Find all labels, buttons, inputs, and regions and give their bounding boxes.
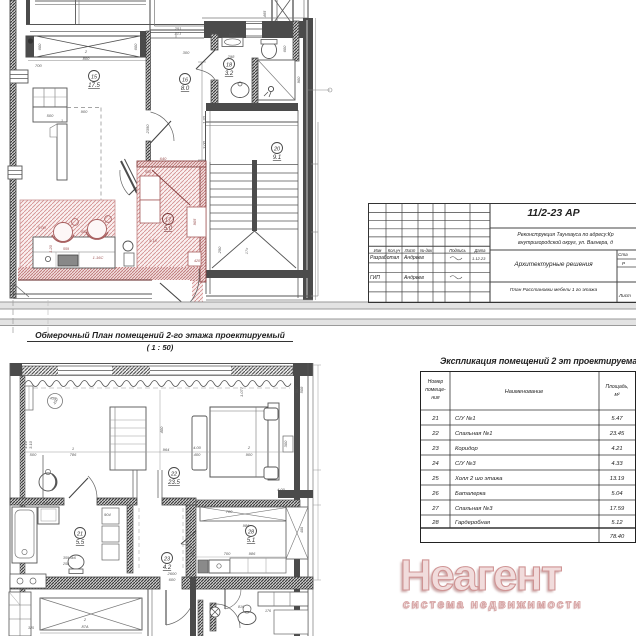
svg-text:508: 508	[299, 386, 304, 393]
svg-text:359 №6: 359 №6	[63, 556, 76, 560]
svg-text:350: 350	[191, 551, 195, 557]
svg-text:600: 600	[37, 43, 42, 50]
svg-text:5.00: 5.00	[38, 225, 47, 230]
svg-text:986: 986	[243, 523, 250, 528]
svg-text:1.16: 1.16	[23, 440, 28, 449]
svg-text:1.20: 1.20	[48, 244, 53, 253]
svg-text:21: 21	[76, 532, 83, 538]
svg-text:1.20: 1.20	[202, 115, 207, 124]
svg-text:905: 905	[192, 218, 197, 225]
svg-text:27: 27	[431, 506, 439, 512]
svg-text:С/У №3: С/У №3	[455, 461, 476, 467]
svg-text:5.10: 5.10	[149, 238, 158, 243]
svg-text:23.5: 23.5	[167, 480, 180, 486]
svg-text:8.0: 8.0	[181, 86, 190, 92]
svg-text:400: 400	[194, 452, 201, 457]
svg-text:помеще-: помеще-	[425, 387, 446, 393]
svg-text:347: 347	[294, 386, 299, 393]
svg-text:13.19: 13.19	[610, 476, 625, 482]
svg-text:4.00: 4.00	[277, 487, 286, 492]
svg-text:78.40: 78.40	[610, 534, 625, 540]
svg-text:700: 700	[226, 509, 233, 514]
svg-text:600: 600	[133, 43, 138, 50]
svg-text:87А: 87А	[81, 624, 88, 629]
svg-text:450: 450	[50, 396, 57, 401]
svg-text:23.45: 23.45	[609, 431, 625, 437]
svg-text:904: 904	[104, 512, 111, 517]
svg-text:465: 465	[262, 10, 267, 17]
svg-text:800: 800	[83, 56, 90, 61]
svg-text:Спальная №1: Спальная №1	[455, 431, 492, 437]
svg-text:1: 1	[72, 446, 74, 451]
svg-text:2350: 2350	[145, 124, 150, 135]
svg-text:22: 22	[170, 472, 177, 478]
svg-text:420: 420	[194, 259, 200, 263]
svg-text:17: 17	[165, 218, 172, 224]
svg-text:17x: 17x	[244, 247, 249, 254]
svg-text:900: 900	[81, 109, 88, 114]
svg-text:500: 500	[43, 501, 50, 506]
svg-text:1.16С: 1.16С	[93, 255, 104, 260]
svg-text:3.10: 3.10	[28, 440, 33, 449]
svg-text:Наименование: Наименование	[505, 389, 544, 395]
svg-text:786: 786	[70, 452, 77, 457]
svg-text:700: 700	[224, 551, 231, 556]
svg-text:16: 16	[182, 78, 189, 84]
svg-text:20: 20	[273, 147, 281, 153]
svg-text:250: 250	[217, 246, 222, 254]
svg-text:5.12: 5.12	[611, 520, 623, 526]
svg-text:700: 700	[35, 63, 42, 68]
svg-text:600: 600	[282, 45, 287, 52]
svg-text:21: 21	[431, 416, 438, 422]
svg-text:459: 459	[81, 229, 88, 234]
svg-text:4.21: 4.21	[611, 446, 622, 452]
svg-text:Баталерка: Баталерка	[455, 491, 486, 497]
svg-text:5.0: 5.0	[164, 226, 173, 232]
svg-text:Площадь,: Площадь,	[605, 384, 628, 390]
svg-text:1: 1	[61, 119, 63, 123]
svg-text:24: 24	[431, 461, 438, 467]
svg-text:964: 964	[163, 447, 170, 452]
svg-text:м²: м²	[614, 392, 619, 398]
svg-text:Гардеробная: Гардеробная	[455, 520, 490, 526]
svg-text:26: 26	[431, 491, 439, 497]
svg-text:900: 900	[246, 452, 253, 457]
svg-text:500: 500	[47, 113, 54, 118]
svg-text:Номер: Номер	[428, 379, 444, 385]
svg-text:900: 900	[296, 76, 301, 83]
svg-text:258: 258	[62, 562, 69, 566]
svg-text:23: 23	[431, 446, 439, 452]
svg-text:5.1: 5.1	[247, 538, 255, 544]
svg-text:Коридор: Коридор	[455, 446, 479, 452]
svg-text:1.077: 1.077	[239, 386, 244, 397]
svg-text:500: 500	[30, 452, 37, 457]
svg-text:640: 640	[160, 156, 167, 161]
svg-text:325: 325	[28, 626, 34, 630]
svg-text:22: 22	[431, 431, 439, 437]
svg-text:17.5: 17.5	[88, 83, 100, 89]
svg-text:23: 23	[163, 557, 171, 563]
svg-text:298: 298	[227, 54, 235, 59]
svg-text:986: 986	[249, 551, 256, 556]
svg-text:550: 550	[229, 32, 236, 37]
svg-text:Холл 2 шо этажа: Холл 2 шо этажа	[454, 476, 503, 482]
svg-text:300: 300	[283, 440, 288, 447]
svg-text:176: 176	[265, 609, 271, 613]
svg-text:17.59: 17.59	[610, 506, 625, 512]
svg-text:5.47: 5.47	[611, 416, 623, 422]
svg-text:25: 25	[431, 476, 439, 482]
svg-text:221: 221	[174, 31, 182, 36]
svg-text:15: 15	[91, 75, 98, 81]
svg-text:300: 300	[183, 50, 190, 55]
svg-text:3.00: 3.00	[202, 140, 207, 149]
svg-text:ния: ния	[431, 395, 440, 401]
svg-text:550: 550	[145, 170, 151, 174]
svg-text:28: 28	[431, 520, 439, 526]
svg-text:559: 559	[63, 247, 69, 251]
svg-text:18: 18	[226, 63, 233, 69]
svg-text:2600: 2600	[167, 571, 178, 576]
svg-text:3.2: 3.2	[225, 71, 234, 77]
svg-text:4.33: 4.33	[611, 461, 623, 467]
svg-text:Спальная №3: Спальная №3	[455, 506, 493, 512]
svg-text:9.1: 9.1	[273, 155, 281, 161]
svg-text:400: 400	[159, 426, 164, 433]
svg-text:400: 400	[300, 527, 304, 533]
svg-text:4.00: 4.00	[193, 445, 202, 450]
svg-text:28: 28	[247, 530, 255, 536]
svg-text:600: 600	[169, 577, 176, 582]
svg-text:С/У №1: С/У №1	[455, 416, 476, 422]
svg-text:816: 816	[238, 605, 244, 609]
svg-text:5.04: 5.04	[611, 491, 622, 497]
svg-text:5.5: 5.5	[76, 540, 85, 546]
